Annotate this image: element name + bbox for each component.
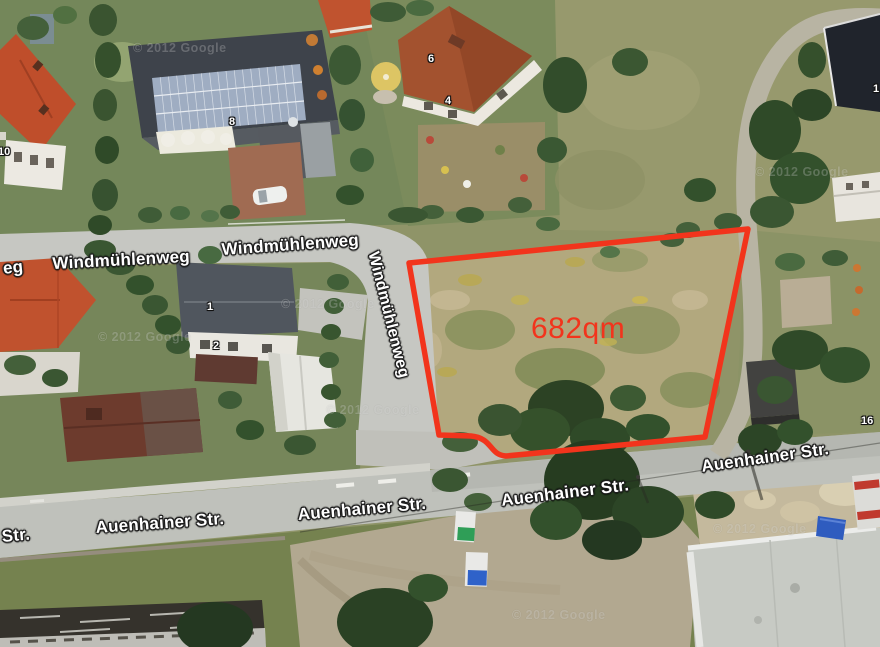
aerial-imagery [0,0,880,647]
house-number-10-white [0,132,6,140]
plot-area-label: 682qm [531,312,625,346]
satellite-map[interactable]: © 2012 Google© 2012 Google© 2012 Google©… [0,0,880,647]
blue-container [816,516,846,540]
white-house-right-edge [832,172,880,222]
dark-red-shed [60,388,203,462]
construction-building-bottom-right [688,528,880,647]
umbrella-yellow [371,62,401,104]
